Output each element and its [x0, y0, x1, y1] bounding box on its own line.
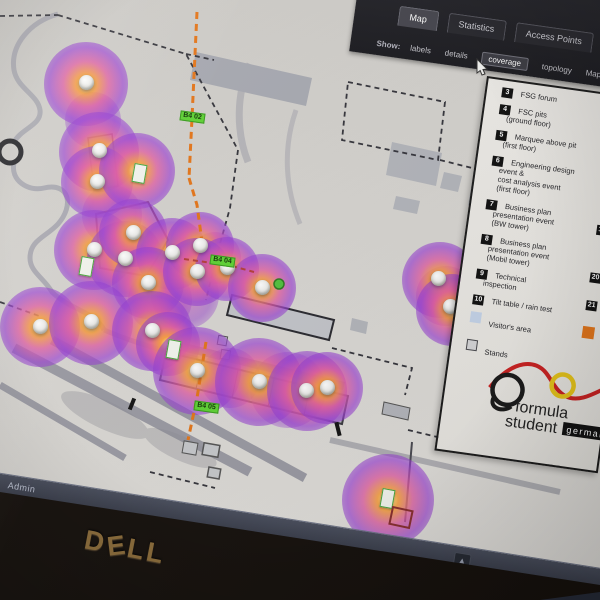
show-option-details[interactable]: details [444, 48, 468, 60]
admin-label: Admin [7, 480, 36, 494]
access-point-marker[interactable] [193, 238, 208, 253]
tab-statistics[interactable]: Statistics [446, 13, 506, 41]
logo-red-curve [490, 359, 600, 407]
access-point-marker[interactable] [33, 319, 48, 334]
legend-badge: 8 [481, 234, 493, 245]
tab-access-points[interactable]: Access Points [514, 22, 595, 53]
legend-swatch-label: Visitor's area [488, 320, 532, 335]
legend-badge: 10 [472, 294, 484, 305]
legend-badge: 4 [499, 104, 511, 115]
access-point-marker[interactable] [255, 280, 270, 295]
access-point-marker[interactable] [126, 225, 141, 240]
show-option-maps[interactable]: Maps [585, 68, 600, 80]
building-outline-marker [388, 506, 413, 529]
legend-badge: 5 [495, 130, 507, 141]
waypoint-label: B4 05 [193, 400, 219, 413]
access-point-rect-marker[interactable] [78, 256, 94, 277]
legend-badge: 6 [492, 156, 504, 167]
access-point-marker[interactable] [118, 251, 133, 266]
access-point-marker[interactable] [79, 75, 94, 90]
waypoint-label: B4 04 [209, 254, 235, 267]
access-point-rect-marker[interactable] [165, 339, 181, 360]
access-point-marker[interactable] [252, 374, 267, 389]
mouse-cursor-icon [476, 58, 490, 76]
access-point-marker[interactable] [92, 143, 107, 158]
access-point-marker[interactable] [90, 174, 105, 189]
access-point-rect-marker[interactable] [131, 163, 147, 184]
access-point-marker[interactable] [190, 264, 205, 279]
access-point-marker[interactable] [299, 383, 314, 398]
legend-badge: 7 [485, 199, 497, 210]
access-point-marker[interactable] [320, 380, 335, 395]
access-point-marker[interactable] [145, 323, 160, 338]
access-point-marker[interactable] [84, 314, 99, 329]
legend-swatch [470, 311, 482, 323]
access-point-marker[interactable] [87, 242, 102, 257]
show-label: Show: [376, 39, 401, 51]
legend-swatch [466, 339, 478, 351]
waypoint-label: B4 02 [179, 110, 205, 123]
access-point-marker[interactable] [190, 363, 205, 378]
show-option-topology[interactable]: topology [541, 62, 572, 75]
access-point-marker[interactable] [165, 245, 180, 260]
legend-badge-partial: 20 [589, 272, 600, 283]
legend-badge-partial: 19 [596, 225, 600, 236]
legend-badge-partial: 21 [585, 300, 597, 311]
legend-badge: 3 [501, 87, 513, 98]
tab-map[interactable]: Map [397, 6, 439, 31]
legend-badge: 9 [476, 268, 488, 279]
show-option-labels[interactable]: labels [410, 44, 432, 56]
formula-student-germany-logo: formula student germany [480, 349, 600, 461]
monitor-photo: B4 02B4 04B4 05 MapStatisticsAccess Poin… [0, 0, 600, 600]
legend-partial-swatch [581, 326, 595, 340]
access-point-marker[interactable] [431, 271, 446, 286]
access-point-marker[interactable] [141, 275, 156, 290]
